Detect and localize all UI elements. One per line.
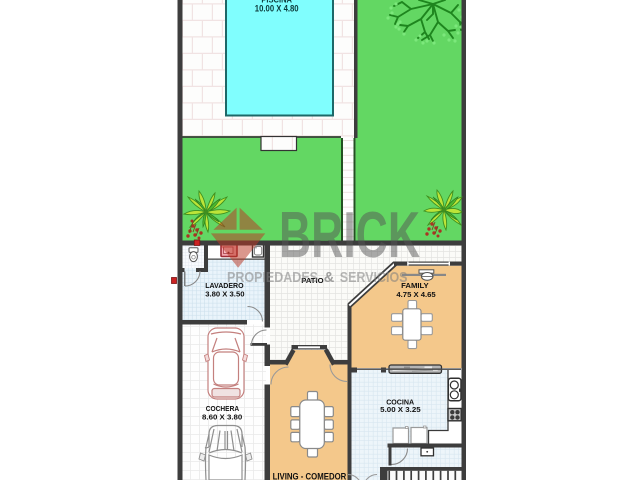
- svg-text:PROPIEDADES: PROPIEDADES: [227, 269, 318, 286]
- svg-text:8.60 X 3.80: 8.60 X 3.80: [202, 413, 242, 422]
- svg-text:SERVICIOS: SERVICIOS: [340, 269, 408, 286]
- svg-text:&: &: [324, 269, 335, 286]
- svg-text:5.00 X 3.25: 5.00 X 3.25: [380, 405, 421, 414]
- svg-text:LIVING - COMEDOR: LIVING - COMEDOR: [273, 472, 347, 480]
- svg-text:10.00 X 4.80: 10.00 X 4.80: [255, 4, 299, 14]
- svg-text:BRICK: BRICK: [279, 198, 420, 271]
- svg-text:4.75 X 4.65: 4.75 X 4.65: [396, 290, 436, 299]
- svg-text:3.80 X 3.50: 3.80 X 3.50: [205, 290, 244, 299]
